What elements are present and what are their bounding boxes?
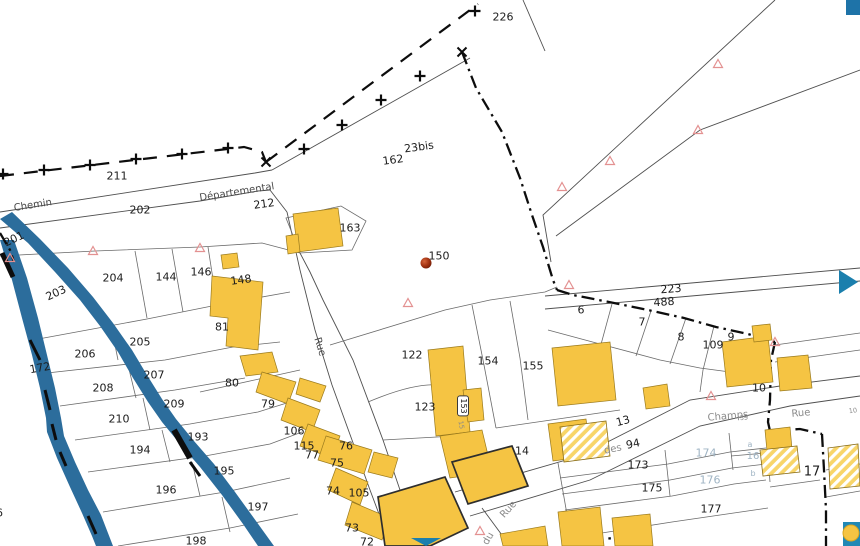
boundary-plus-cross	[85, 160, 96, 171]
map-canvas[interactable]	[0, 0, 860, 546]
survey-triangle-marker	[476, 527, 485, 535]
boundary-x-cross	[262, 158, 271, 167]
boundary-plus-cross	[376, 95, 387, 106]
boundary-plus-cross	[223, 143, 234, 154]
boundary-plus-cross	[470, 6, 481, 17]
boundary-plus-cross	[337, 120, 348, 131]
survey-markers	[0, 6, 780, 535]
survey-triangle-marker	[404, 299, 413, 307]
bottom-right-yellow-marker	[843, 525, 859, 541]
red-point-marker	[421, 258, 432, 269]
survey-triangle-marker	[606, 157, 615, 165]
cadastral-map-viewport: 22621120221216223bis16320120320414414614…	[0, 0, 860, 546]
boundary-plus-cross	[0, 169, 9, 180]
boundary-cross-line	[0, 4, 478, 176]
boundary-plus-cross	[131, 154, 142, 165]
survey-triangle-marker	[558, 183, 567, 191]
parcel-lines	[0, 0, 860, 546]
boundary-plus-cross	[299, 144, 310, 155]
survey-triangle-marker	[714, 60, 723, 68]
pan-arrow-right-icon[interactable]	[839, 270, 858, 294]
survey-triangle-marker	[707, 392, 716, 400]
boundary-plus-cross	[39, 165, 50, 176]
survey-triangle-marker	[89, 247, 98, 255]
boundary-plus-cross	[177, 149, 188, 160]
boundary-dashdot-line	[0, 52, 826, 546]
boundary-plus-cross	[415, 71, 426, 82]
survey-triangle-marker	[565, 281, 574, 289]
top-right-blue-panel[interactable]	[846, 0, 860, 15]
buildings	[210, 208, 860, 546]
